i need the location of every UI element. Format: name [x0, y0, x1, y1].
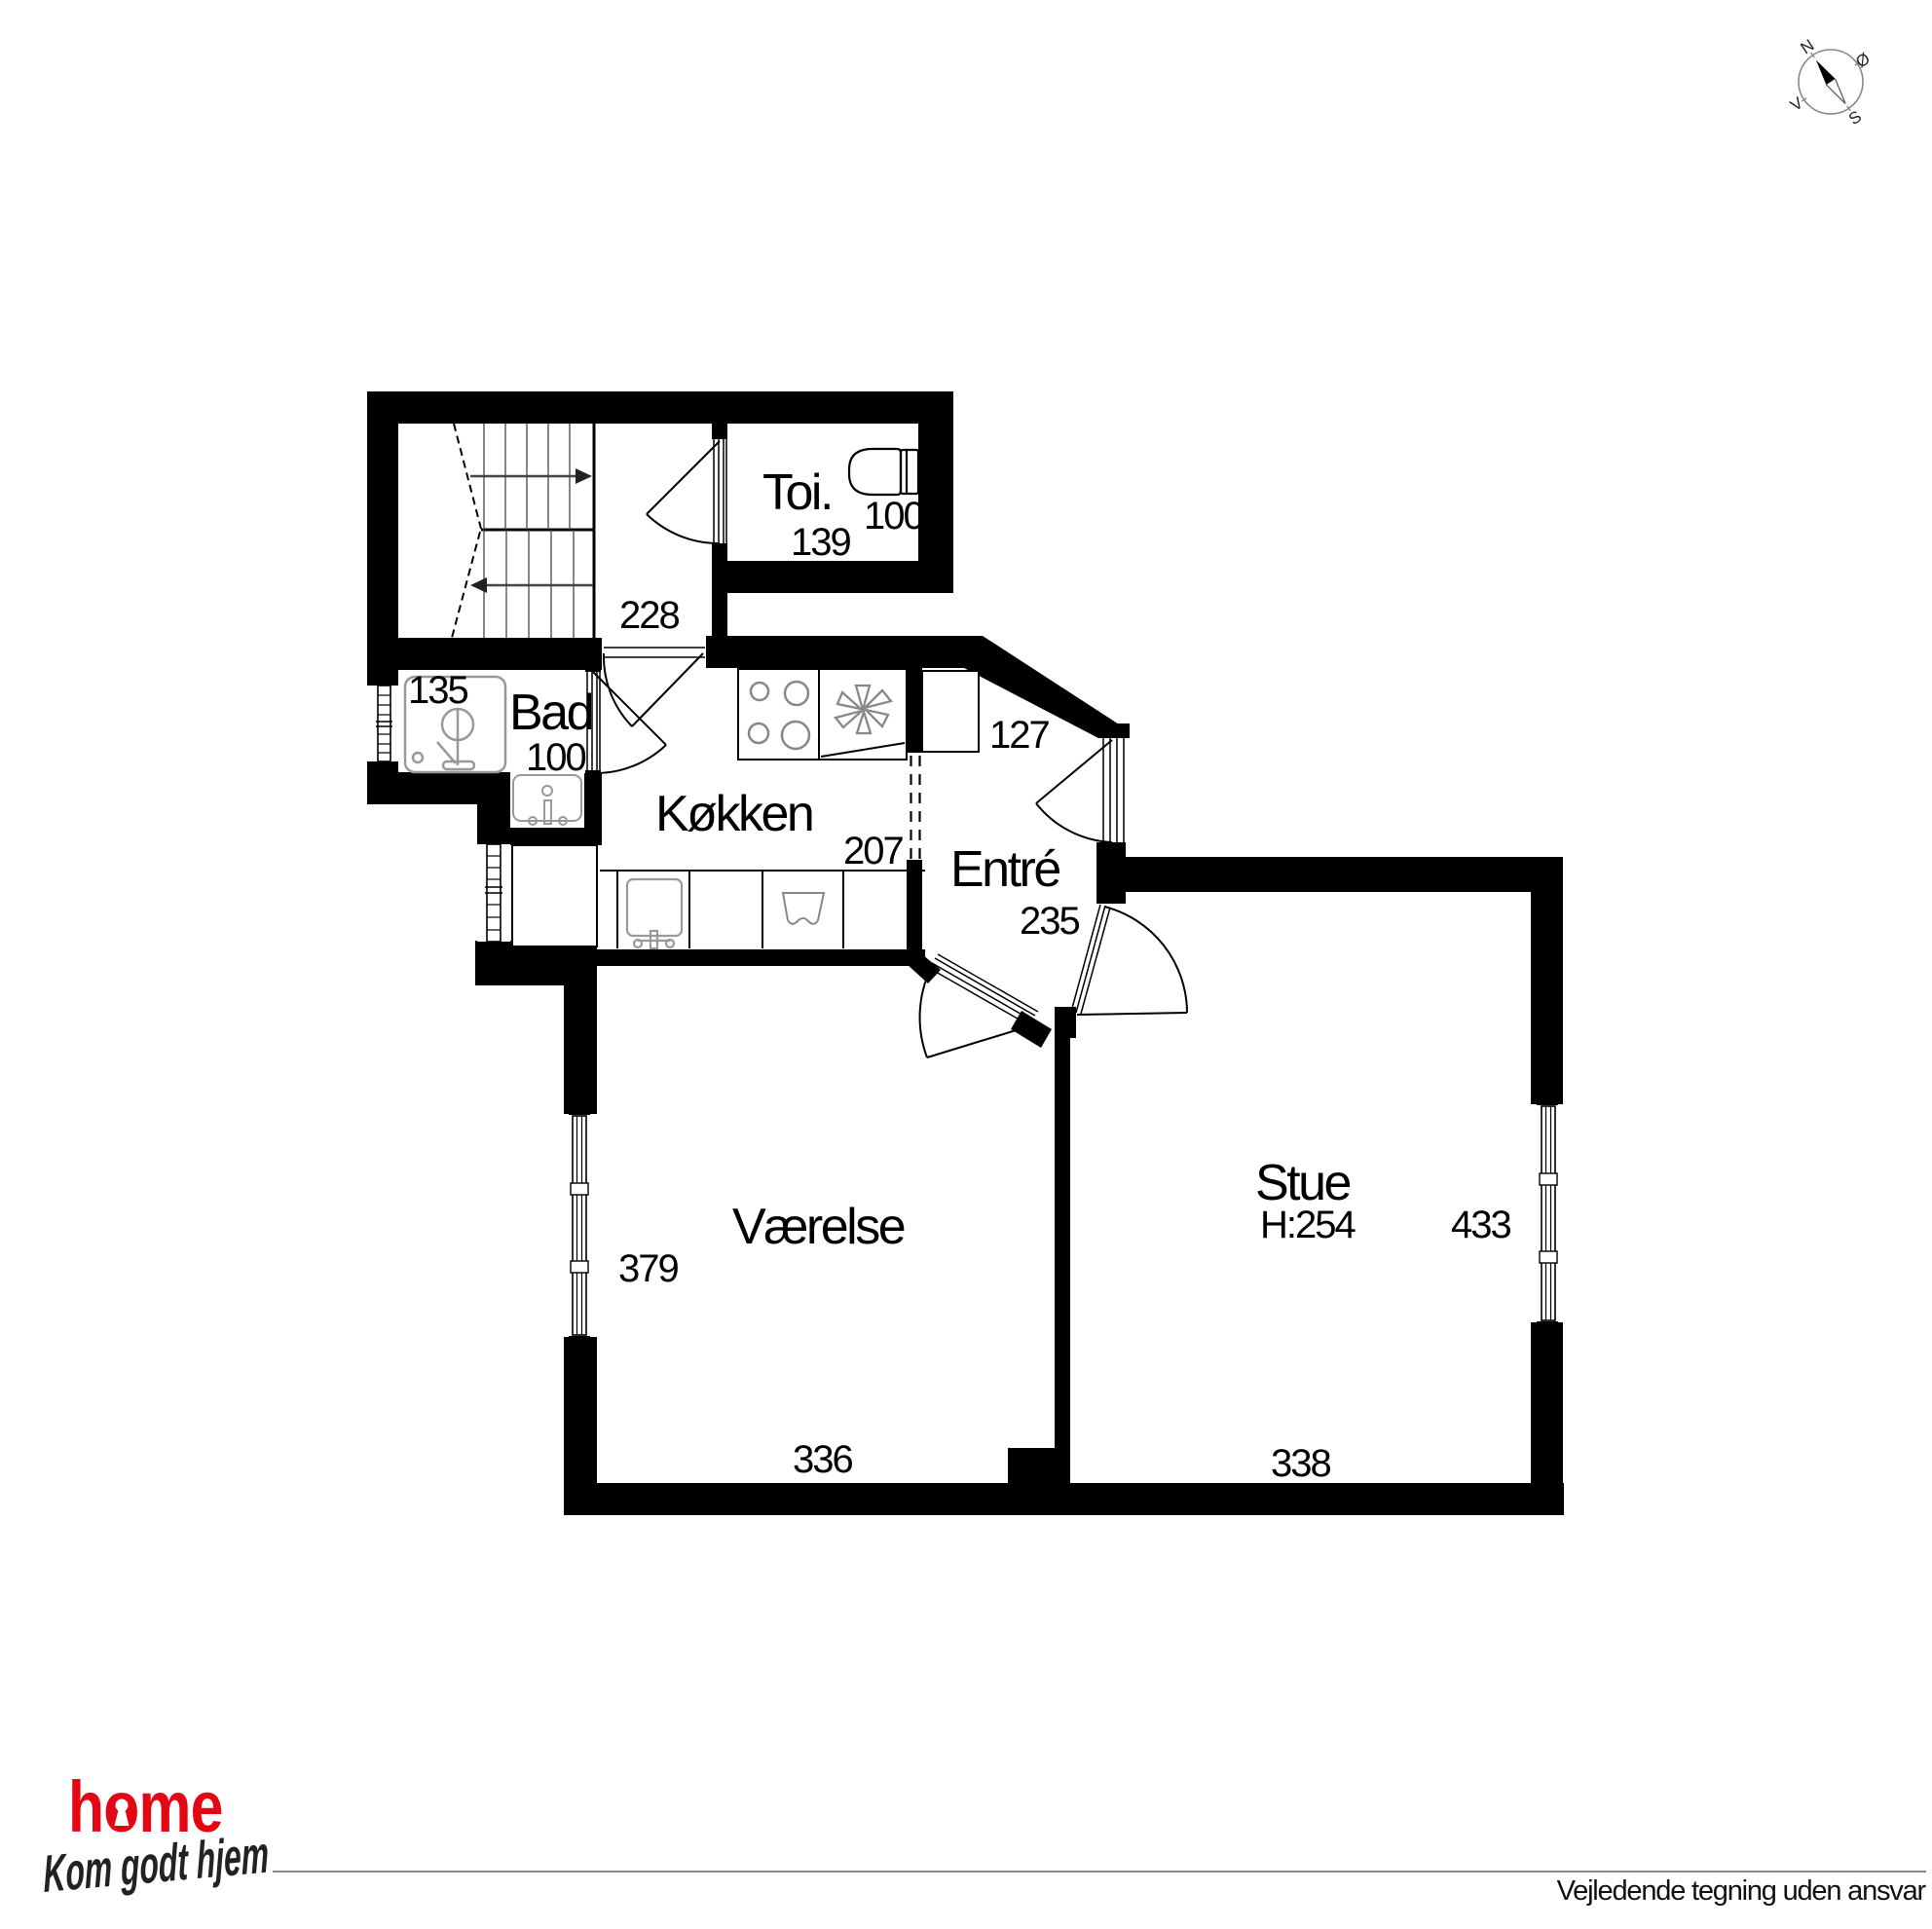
svg-text:235: 235 [1020, 900, 1079, 943]
svg-text:Køkken: Køkken [655, 786, 812, 842]
svg-text:H:254: H:254 [1260, 1204, 1356, 1246]
svg-text:100: 100 [864, 495, 923, 538]
svg-text:Værelse: Værelse [732, 1199, 905, 1255]
svg-text:338: 338 [1271, 1442, 1330, 1485]
svg-text:Vejledende tegning uden ansvar: Vejledende tegning uden ansvar [1557, 1875, 1927, 1907]
svg-text:Bad: Bad [509, 685, 592, 741]
svg-text:Toi.: Toi. [762, 464, 832, 521]
svg-text:139: 139 [791, 521, 850, 564]
svg-text:433: 433 [1451, 1204, 1510, 1246]
svg-text:228: 228 [619, 594, 679, 637]
svg-text:336: 336 [793, 1438, 852, 1481]
svg-text:207: 207 [843, 830, 903, 872]
svg-text:127: 127 [989, 714, 1049, 757]
svg-text:135: 135 [408, 669, 467, 712]
svg-text:379: 379 [618, 1247, 678, 1290]
svg-text:100: 100 [526, 736, 585, 779]
svg-text:Entré: Entré [950, 841, 1059, 898]
